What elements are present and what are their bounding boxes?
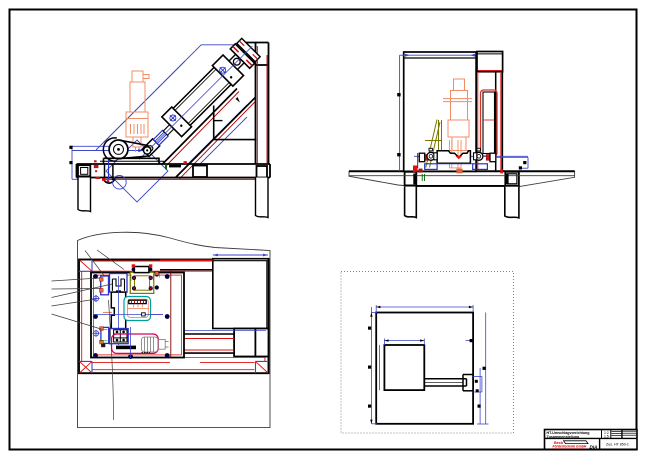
svg-text:Zus. HT 850-1: Zus. HT 850-1 [606, 443, 629, 447]
svg-text:DIA: DIA [590, 444, 598, 449]
svg-text:1:5: 1:5 [604, 435, 609, 439]
svg-text:Fördertechnik GmbH: Fördertechnik GmbH [553, 444, 587, 448]
svg-text:Zusammenstellung: Zusammenstellung [547, 435, 580, 439]
